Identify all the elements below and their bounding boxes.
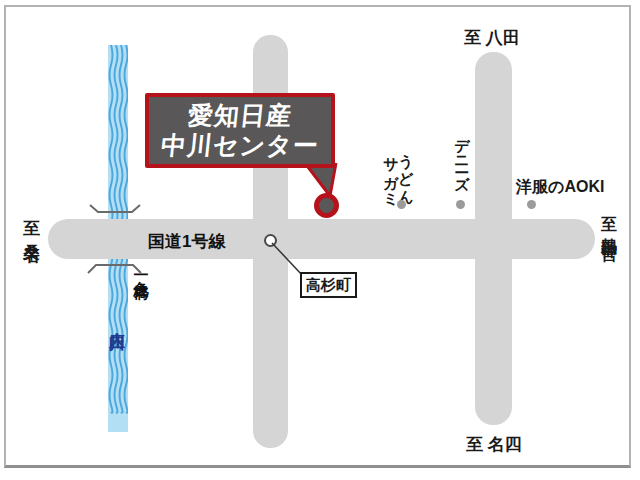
landmark-dennys-label: デニーズ xyxy=(452,128,471,183)
direction-hatta: 至 八田 xyxy=(464,26,520,49)
river-name-label: 庄内川 xyxy=(106,318,127,324)
landmark-dot-dennys xyxy=(456,200,465,209)
landmark-aoki-label: 洋服のAOKI xyxy=(516,177,604,198)
route1-label: 国道1号線 xyxy=(148,230,225,253)
bridge-name-label: 一色大橋 xyxy=(131,267,150,275)
road-route1 xyxy=(48,219,595,259)
direction-meishi: 至 名四 xyxy=(466,433,522,456)
direction-kuwana: 至 桑名 xyxy=(20,207,43,234)
landmark-dot-aoki xyxy=(527,200,536,209)
destination-marker-icon xyxy=(314,193,339,218)
landmark-dot-udon-sagami xyxy=(397,200,406,209)
intersection-name-box: 高杉町 xyxy=(300,272,357,298)
destination-name-line1: 愛知日産 xyxy=(186,101,293,131)
direction-atsuta-jingu: 至 熱田神宮 xyxy=(598,204,619,233)
destination-balloon: 愛知日産 中川センター xyxy=(145,93,335,168)
intersection-name-label: 高杉町 xyxy=(306,276,351,295)
landmark-udon-sagami-line2: サガミ xyxy=(381,147,400,201)
intersection-marker-icon xyxy=(264,234,277,247)
map-canvas: 愛知日産 中川センター 国道1号線 至 八田 至 名四 至 桑名 至 熱田神宮 … xyxy=(0,0,640,480)
destination-name-line2: 中川センター xyxy=(160,131,321,161)
